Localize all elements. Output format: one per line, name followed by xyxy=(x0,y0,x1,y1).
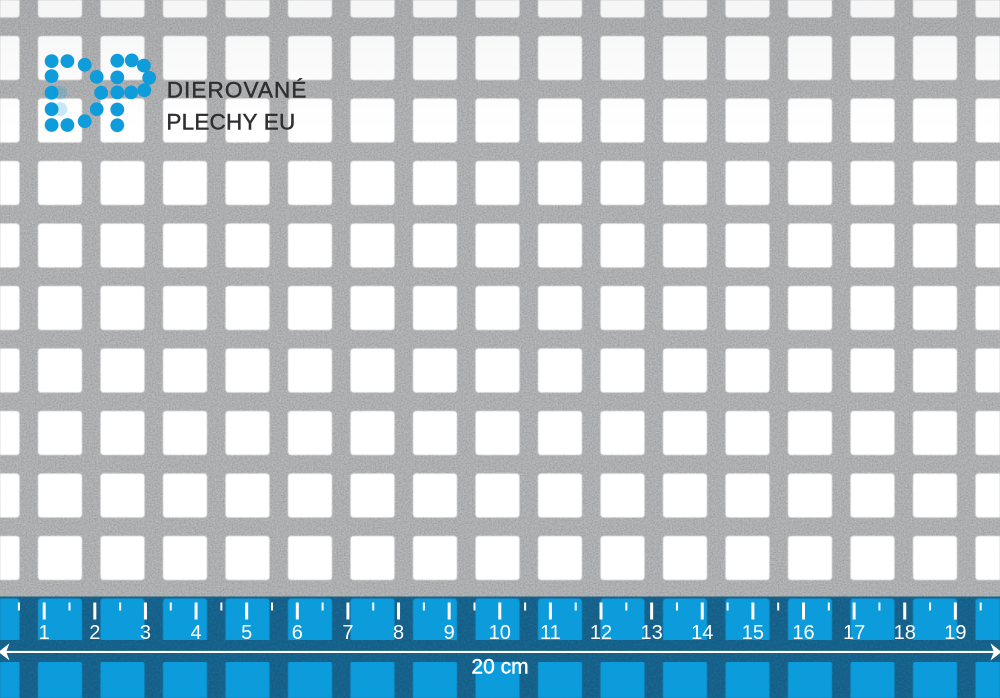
svg-text:PLECHY EU: PLECHY EU xyxy=(166,110,295,135)
svg-text:9: 9 xyxy=(444,622,455,644)
svg-text:18: 18 xyxy=(894,622,916,644)
svg-text:20 cm: 20 cm xyxy=(471,656,528,679)
svg-text:7: 7 xyxy=(342,622,353,644)
svg-text:6: 6 xyxy=(292,622,303,644)
svg-text:15: 15 xyxy=(742,622,764,644)
svg-text:5: 5 xyxy=(241,622,252,644)
svg-text:DIEROVANÉ: DIEROVANÉ xyxy=(167,77,307,102)
svg-text:8: 8 xyxy=(393,622,404,644)
svg-text:1: 1 xyxy=(39,622,50,644)
svg-text:3: 3 xyxy=(140,622,151,644)
svg-text:4: 4 xyxy=(190,622,201,644)
svg-text:12: 12 xyxy=(590,622,612,644)
svg-text:2: 2 xyxy=(89,622,100,644)
svg-text:16: 16 xyxy=(792,622,814,644)
svg-text:19: 19 xyxy=(944,622,966,644)
svg-text:10: 10 xyxy=(489,622,511,644)
svg-text:14: 14 xyxy=(691,622,713,644)
svg-text:11: 11 xyxy=(540,622,561,644)
svg-text:13: 13 xyxy=(641,622,663,644)
svg-text:17: 17 xyxy=(843,622,865,644)
